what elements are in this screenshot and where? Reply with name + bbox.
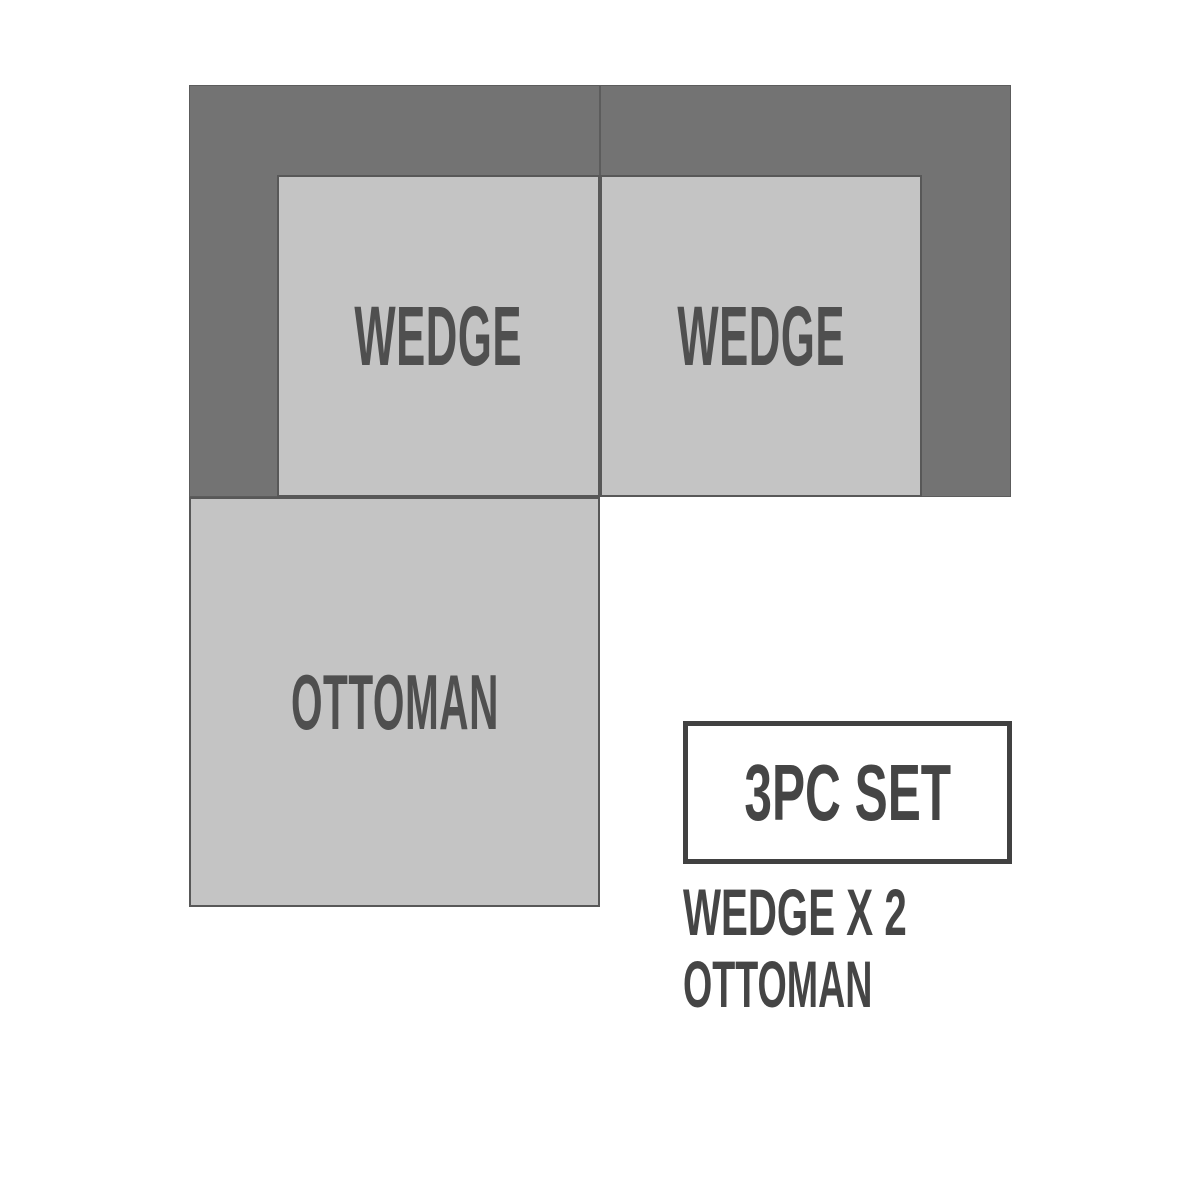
- set-contents-list: WEDGE X 2 OTTOMAN: [683, 876, 1103, 1020]
- set-count-badge-label: 3PC SET: [744, 747, 951, 839]
- set-contents-line-wedges-text: WEDGE X 2: [683, 876, 907, 948]
- wedge-right-seat: WEDGE: [600, 175, 922, 497]
- set-contents-line-ottoman-text: OTTOMAN: [683, 948, 872, 1020]
- wedge-left-seat: WEDGE: [277, 175, 600, 497]
- set-contents-line-wedges: WEDGE X 2: [683, 876, 1103, 948]
- wedge-left-label: WEDGE: [355, 288, 523, 385]
- wedge-left-frame: WEDGE: [189, 85, 600, 497]
- ottoman-piece: OTTOMAN: [189, 497, 600, 907]
- wedge-right-label: WEDGE: [677, 288, 845, 385]
- sectional-set-diagram: WEDGE WEDGE OTTOMAN 3PC SET WEDGE X 2 OT…: [0, 0, 1200, 1200]
- wedge-right-frame: WEDGE: [600, 85, 1011, 497]
- set-count-badge: 3PC SET: [683, 721, 1012, 864]
- set-contents-line-ottoman: OTTOMAN: [683, 948, 1103, 1020]
- ottoman-label: OTTOMAN: [291, 657, 499, 748]
